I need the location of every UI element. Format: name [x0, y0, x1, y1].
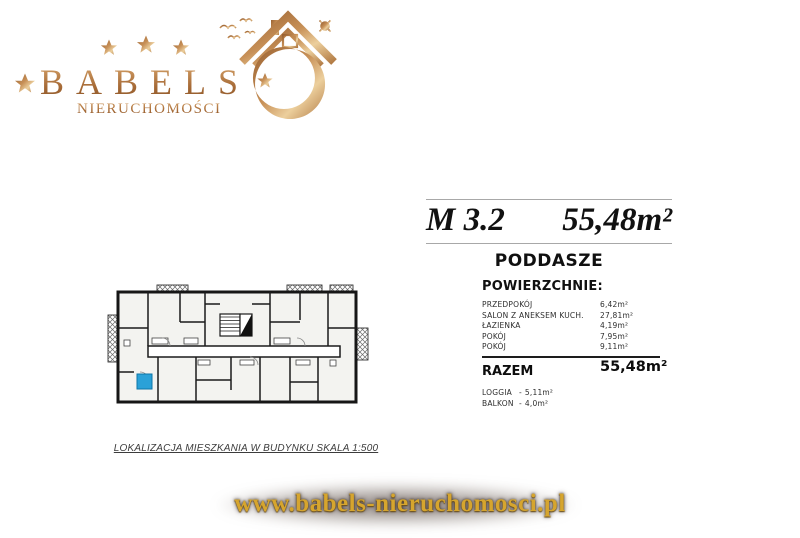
extra-separator: - — [519, 399, 522, 408]
apartment-location-marker — [137, 374, 152, 389]
extra-value: 5,11m² — [525, 388, 553, 397]
babels-logo: BABELS NIERUCHOMOŚCI — [0, 0, 370, 150]
areas-table: POWIERZCHNIE: PRZEDPOKÓJ 6,42m² SALON Z … — [482, 279, 660, 410]
corridor — [148, 346, 340, 357]
table-row: SALON Z ANEKSEM KUCH. 27,81m² — [482, 311, 660, 322]
extra-label: LOGGIA — [482, 388, 516, 397]
left-star-icon — [15, 74, 35, 93]
room-label: PRZEDPOKÓJ — [482, 300, 532, 309]
room-value: 6,42m² — [600, 300, 628, 309]
list-item: BALKON-4,0m² — [482, 399, 660, 410]
plan-caption: LOKALIZACJA MIESZKANIA W BUDYNKU SKALA 1… — [100, 443, 392, 454]
extra-value: 4,0m² — [525, 399, 548, 408]
unit-total-area: 55,48m² — [562, 204, 672, 237]
brand-name: BABELS — [40, 62, 250, 102]
website-url[interactable]: www.babels-nieruchomosci.pl — [0, 490, 800, 518]
total-value: 55,48m² — [600, 359, 667, 375]
stairwell — [220, 314, 252, 336]
total-row: RAZEM 55,48m² — [482, 356, 660, 377]
floor-label: PODDASZE — [426, 251, 672, 271]
total-label: RAZEM — [482, 364, 533, 379]
list-item: LOGGIA-5,11m² — [482, 388, 660, 399]
room-label: SALON Z ANEKSEM KUCH. — [482, 311, 584, 320]
floor-plan — [100, 282, 380, 410]
table-row: POKÓJ 9,11m² — [482, 342, 660, 353]
room-value: 27,81m² — [600, 311, 633, 320]
room-value: 7,95m² — [600, 332, 628, 341]
right-star-icon — [257, 73, 272, 87]
extras-list: LOGGIA-5,11m² BALKON-4,0m² — [482, 388, 660, 410]
extra-label: BALKON — [482, 399, 516, 408]
areas-header: POWIERZCHNIE: — [482, 279, 660, 294]
sun-icon — [317, 18, 333, 34]
table-row: PRZEDPOKÓJ 6,42m² — [482, 300, 660, 311]
unit-number: M 3.2 — [426, 204, 505, 237]
room-value: 9,11m² — [600, 342, 628, 351]
table-row: ŁAZIENKA 4,19m² — [482, 321, 660, 332]
room-label: POKÓJ — [482, 342, 506, 351]
extra-separator: - — [519, 388, 522, 397]
flyer-page: BABELS NIERUCHOMOŚCI — [0, 0, 800, 538]
birds-icon — [220, 19, 255, 38]
room-value: 4,19m² — [600, 321, 628, 330]
stars-row-icon — [101, 36, 189, 55]
room-label: POKÓJ — [482, 332, 506, 341]
room-label: ŁAZIENKA — [482, 321, 521, 330]
unit-title-block: M 3.2 55,48m² — [426, 199, 672, 244]
table-row: POKÓJ 7,95m² — [482, 332, 660, 343]
brand-subtitle: NIERUCHOMOŚCI — [77, 100, 222, 117]
